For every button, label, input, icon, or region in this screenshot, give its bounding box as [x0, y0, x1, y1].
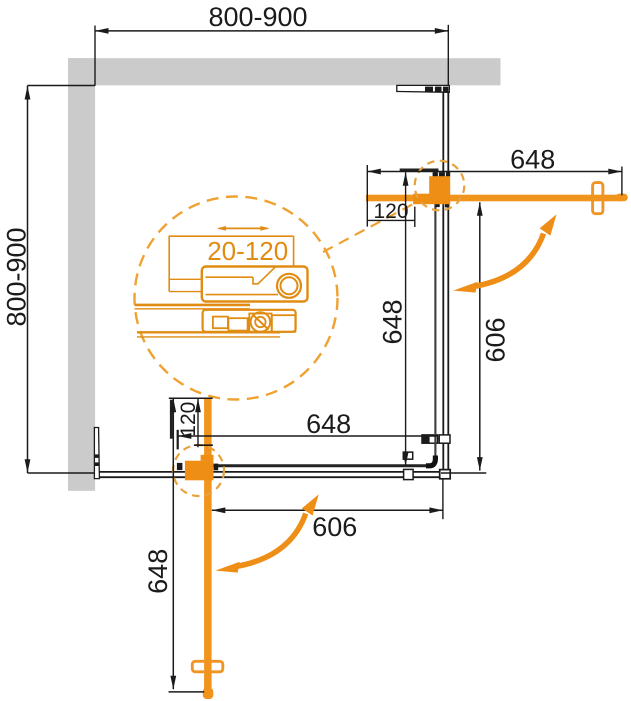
svg-text:800-900: 800-900 — [208, 2, 307, 32]
svg-text:120: 120 — [177, 402, 200, 437]
svg-text:606: 606 — [312, 512, 357, 542]
svg-text:648: 648 — [510, 144, 555, 174]
svg-text:800-900: 800-900 — [2, 227, 32, 326]
svg-text:20-120: 20-120 — [207, 236, 288, 266]
svg-text:648: 648 — [378, 299, 408, 344]
svg-text:648: 648 — [143, 549, 173, 594]
svg-text:120: 120 — [373, 200, 408, 223]
svg-text:606: 606 — [480, 317, 510, 362]
svg-text:648: 648 — [306, 409, 351, 439]
